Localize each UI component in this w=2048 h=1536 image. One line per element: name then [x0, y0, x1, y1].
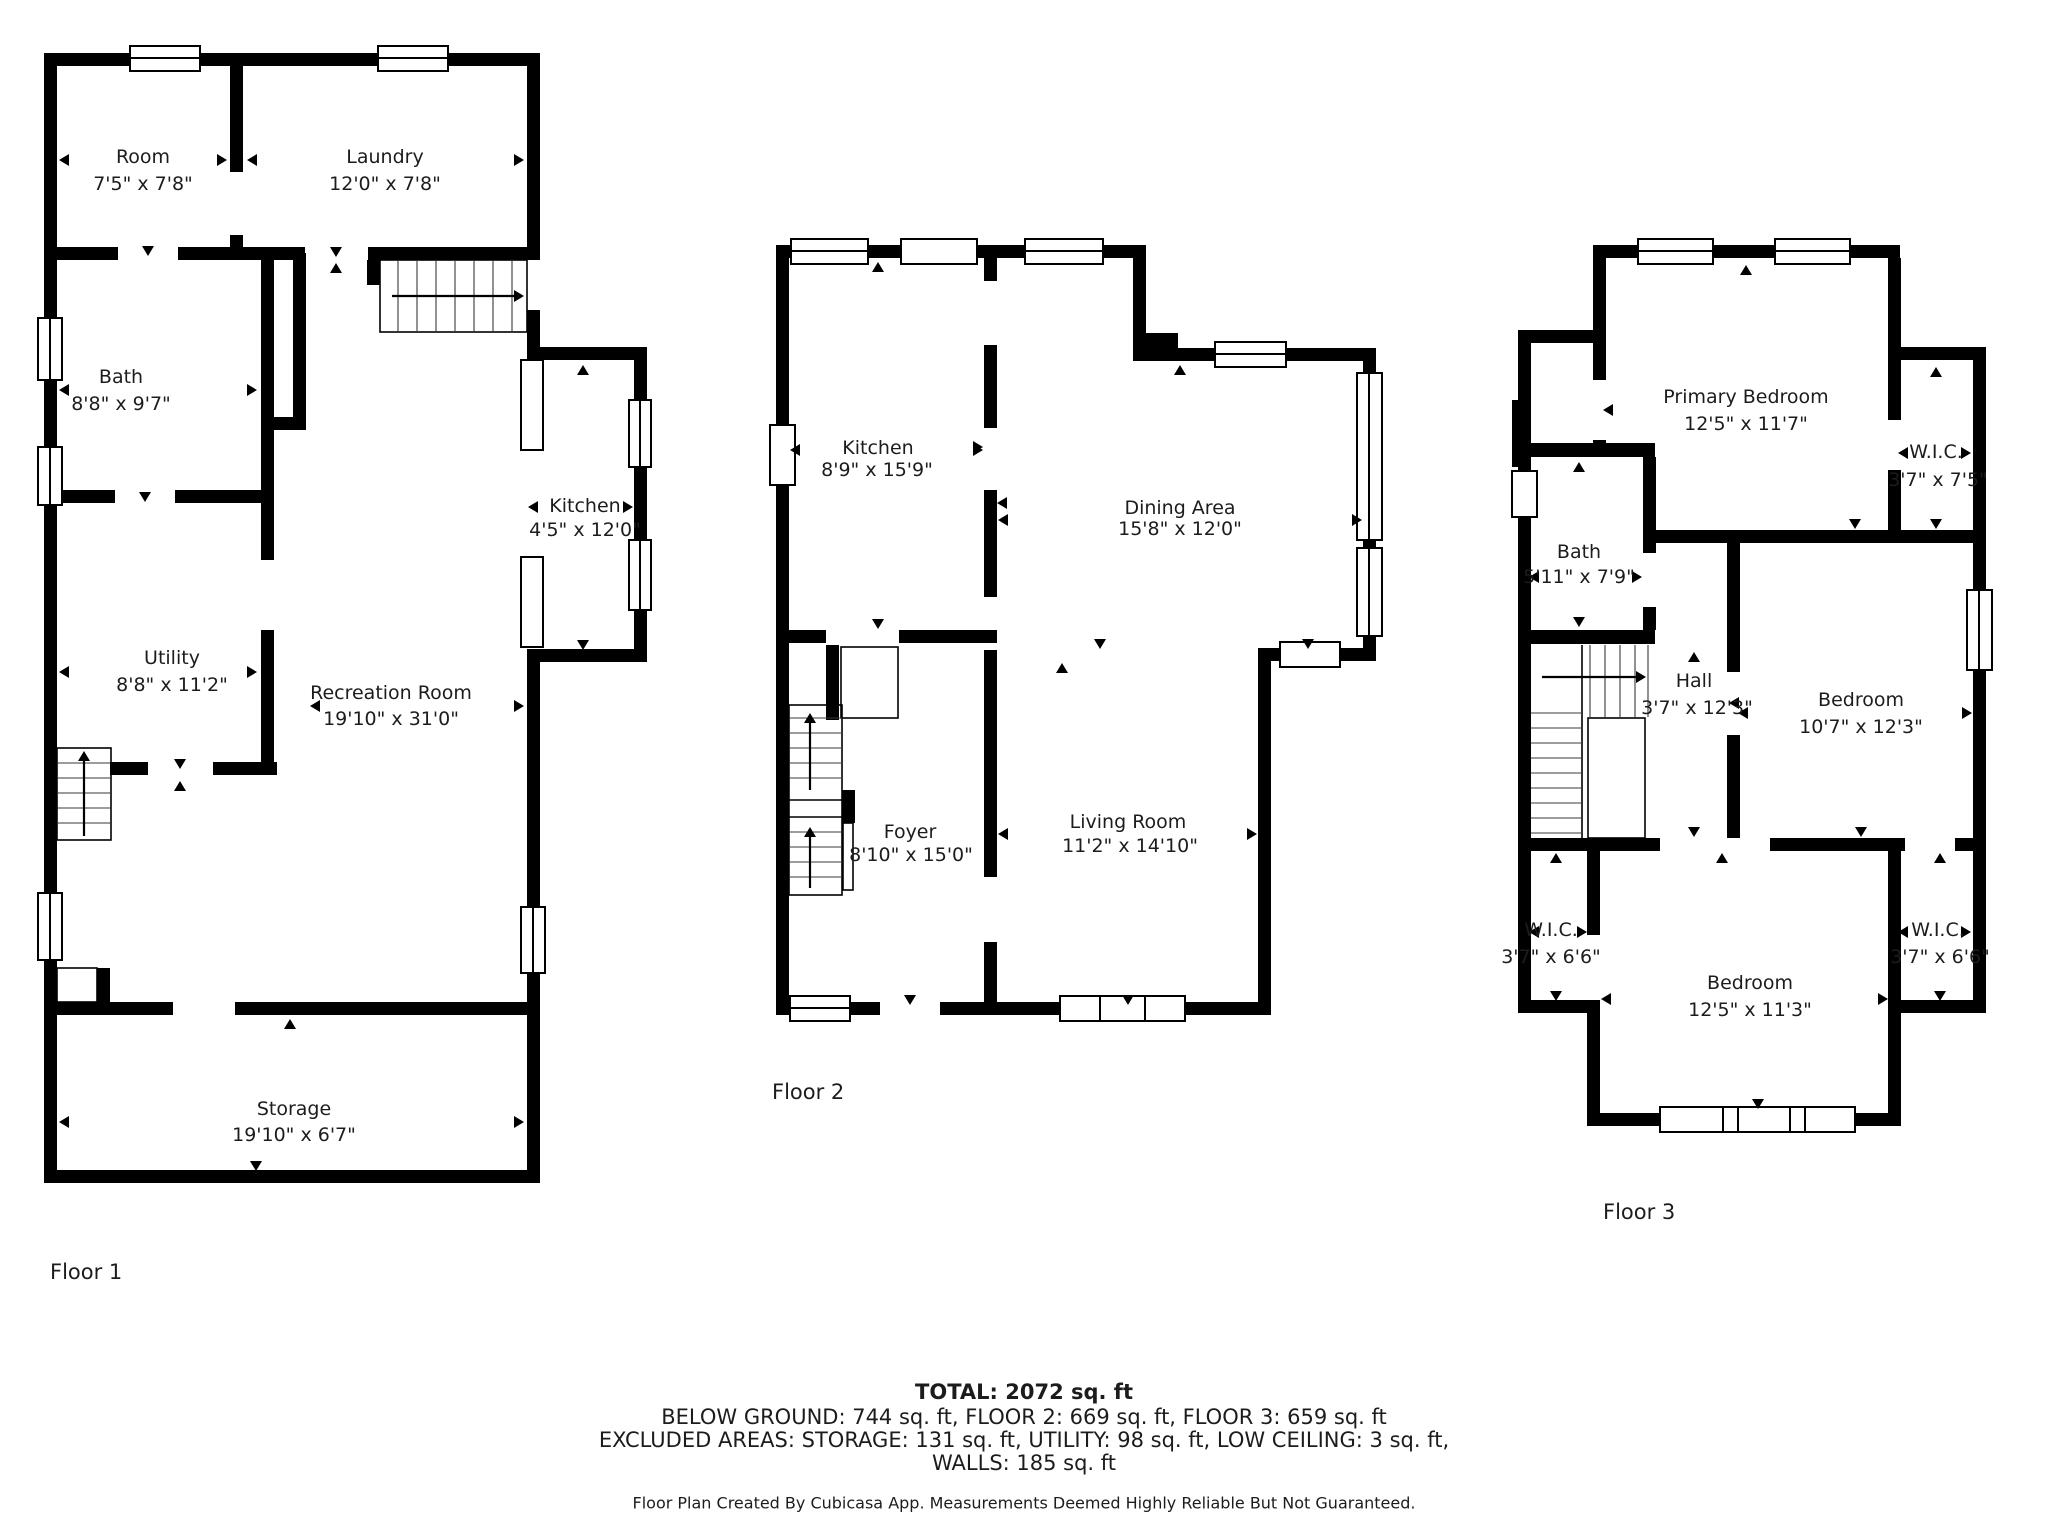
f1-bath-name: Bath	[99, 366, 143, 388]
f1-laundry-dims: 12'0" x 7'8"	[329, 173, 441, 195]
floor2-label: Floor 2	[772, 1080, 844, 1104]
f3-hall-name: Hall	[1676, 670, 1713, 692]
f3-wic3-name: W.I.C.	[1911, 919, 1965, 941]
summary-total: TOTAL: 2072 sq. ft	[915, 1380, 1133, 1404]
f3-bath-dims: 5'11" x 7'9"	[1523, 566, 1635, 588]
f1-bath-dims: 8'8" x 9'7"	[71, 393, 171, 415]
f3-wic1-dims: 3'7" x 7'5"	[1888, 469, 1988, 491]
f2-dining-name: Dining Area	[1124, 497, 1235, 519]
f1-kitchen-dims: 4'5" x 12'0"	[529, 519, 641, 541]
floor1-stairs-upper	[380, 260, 527, 332]
summary-walls: WALLS: 185 sq. ft	[932, 1451, 1116, 1475]
floor3-stairs	[1531, 645, 1648, 838]
f3-wic2-dims: 3'7" x 6'6"	[1501, 946, 1601, 968]
summary-block: TOTAL: 2072 sq. ft BELOW GROUND: 744 sq.…	[599, 1380, 1449, 1513]
floor3-label: Floor 3	[1603, 1200, 1675, 1224]
summary-excluded: EXCLUDED AREAS: STORAGE: 131 sq. ft, UTI…	[599, 1428, 1449, 1452]
f1-storage-dims: 19'10" x 6'7"	[232, 1124, 356, 1146]
floor2-markers	[790, 262, 1362, 1005]
f1-utility-dims: 8'8" x 11'2"	[116, 674, 228, 696]
f2-foyer-dims: 8'10" x 15'0"	[849, 844, 973, 866]
f3-primary-dims: 12'5" x 11'7"	[1684, 413, 1808, 435]
summary-below-ground: BELOW GROUND: 744 sq. ft, FLOOR 2: 669 s…	[661, 1405, 1387, 1429]
f1-utility-name: Utility	[144, 647, 200, 669]
f1-laundry-name: Laundry	[346, 146, 423, 168]
f2-kitchen-name: Kitchen	[842, 437, 913, 459]
f3-bath-name: Bath	[1557, 541, 1601, 563]
f2-foyer-name: Foyer	[884, 821, 937, 843]
f2-dining-dims: 15'8" x 12'0"	[1118, 518, 1242, 540]
floor-plan-page: Room 7'5" x 7'8" Laundry 12'0" x 7'8" Ba…	[0, 0, 2048, 1536]
floor2-plan: Kitchen 8'9" x 15'9" Dining Area 15'8" x…	[770, 239, 1382, 1104]
f1-recreation-name: Recreation Room	[310, 682, 472, 704]
floor3-plan: Primary Bedroom 12'5" x 11'7" W.I.C. 3'7…	[1501, 239, 1992, 1224]
f3-bedroom2-name: Bedroom	[1707, 972, 1793, 994]
floor1-label: Floor 1	[50, 1260, 122, 1284]
f3-bedroom2-dims: 12'5" x 11'3"	[1688, 999, 1812, 1021]
floor-plan-svg: Room 7'5" x 7'8" Laundry 12'0" x 7'8" Ba…	[0, 0, 2048, 1536]
f3-wic2-name: W.I.C.	[1524, 919, 1578, 941]
floor1-plan: Room 7'5" x 7'8" Laundry 12'0" x 7'8" Ba…	[38, 46, 651, 1284]
f1-room-dims: 7'5" x 7'8"	[93, 173, 193, 195]
f3-bedroom1-dims: 10'7" x 12'3"	[1799, 716, 1923, 738]
f3-wic3-dims: 3'7" x 6'6"	[1890, 946, 1990, 968]
f1-recreation-dims: 19'10" x 31'0"	[323, 708, 459, 730]
f2-living-dims: 11'2" x 14'10"	[1062, 835, 1198, 857]
f1-kitchen-name: Kitchen	[549, 495, 620, 517]
f3-bedroom1-name: Bedroom	[1818, 689, 1904, 711]
f3-hall-dims: 3'7" x 12'3"	[1641, 697, 1753, 719]
f3-wic1-name: W.I.C.	[1909, 441, 1963, 463]
f3-primary-name: Primary Bedroom	[1663, 386, 1828, 408]
f2-living-name: Living Room	[1070, 811, 1187, 833]
f2-kitchen-dims: 8'9" x 15'9"	[821, 459, 933, 481]
summary-disclaimer: Floor Plan Created By Cubicasa App. Meas…	[633, 1494, 1416, 1513]
f1-room-name: Room	[116, 146, 170, 168]
f1-storage-name: Storage	[257, 1098, 331, 1120]
floor1-stairs-lower	[57, 748, 111, 840]
